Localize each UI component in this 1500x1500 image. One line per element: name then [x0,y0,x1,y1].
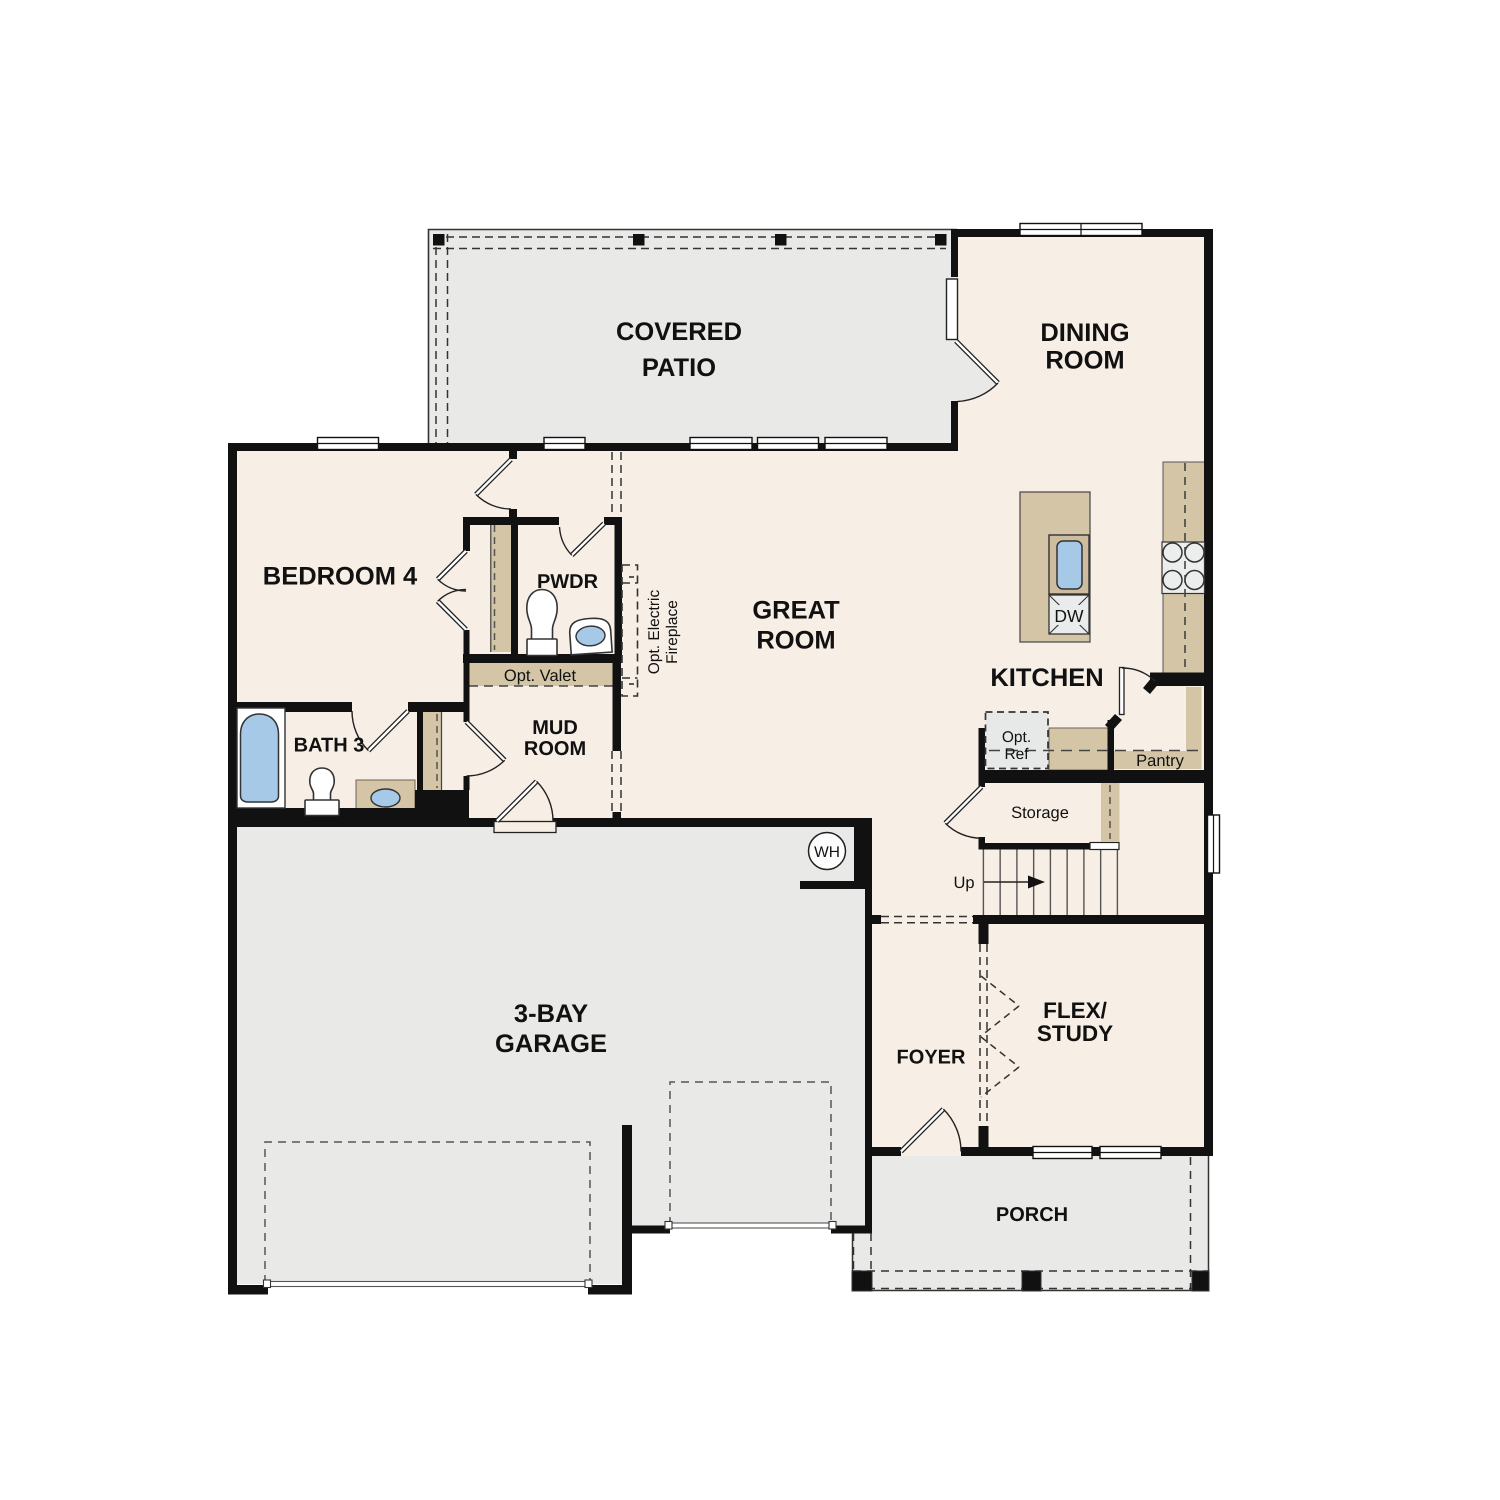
svg-text:COVERED: COVERED [616,318,742,346]
svg-text:FOYER: FOYER [897,1047,966,1069]
svg-text:3-BAY: 3-BAY [514,1000,588,1028]
svg-text:ROOM: ROOM [756,627,835,655]
svg-text:KITCHEN: KITCHEN [990,664,1103,692]
svg-text:Storage: Storage [1011,804,1069,822]
svg-text:Up: Up [953,874,974,892]
svg-text:GARAGE: GARAGE [495,1030,607,1058]
svg-text:Opt.: Opt. [1002,729,1031,746]
svg-text:Fireplace: Fireplace [664,600,681,664]
svg-text:Pantry: Pantry [1136,752,1184,770]
svg-text:ROOM: ROOM [524,738,586,760]
svg-text:FLEX/: FLEX/ [1043,998,1108,1023]
svg-text:DW: DW [1054,606,1084,626]
svg-text:Opt. Valet: Opt. Valet [504,667,577,685]
svg-text:BEDROOM 4: BEDROOM 4 [263,563,418,591]
svg-text:PATIO: PATIO [642,354,716,382]
svg-text:PWDR: PWDR [537,571,599,593]
svg-text:Ref: Ref [1004,746,1029,763]
svg-text:WH: WH [814,844,840,861]
svg-text:DINING: DINING [1040,319,1129,347]
svg-text:MUD: MUD [532,717,578,739]
svg-text:STUDY: STUDY [1037,1021,1113,1046]
svg-text:PORCH: PORCH [996,1204,1068,1226]
svg-text:GREAT: GREAT [752,597,840,625]
svg-text:BATH 3: BATH 3 [294,735,365,757]
svg-text:Opt. Electric: Opt. Electric [646,590,663,675]
svg-text:ROOM: ROOM [1045,347,1124,375]
